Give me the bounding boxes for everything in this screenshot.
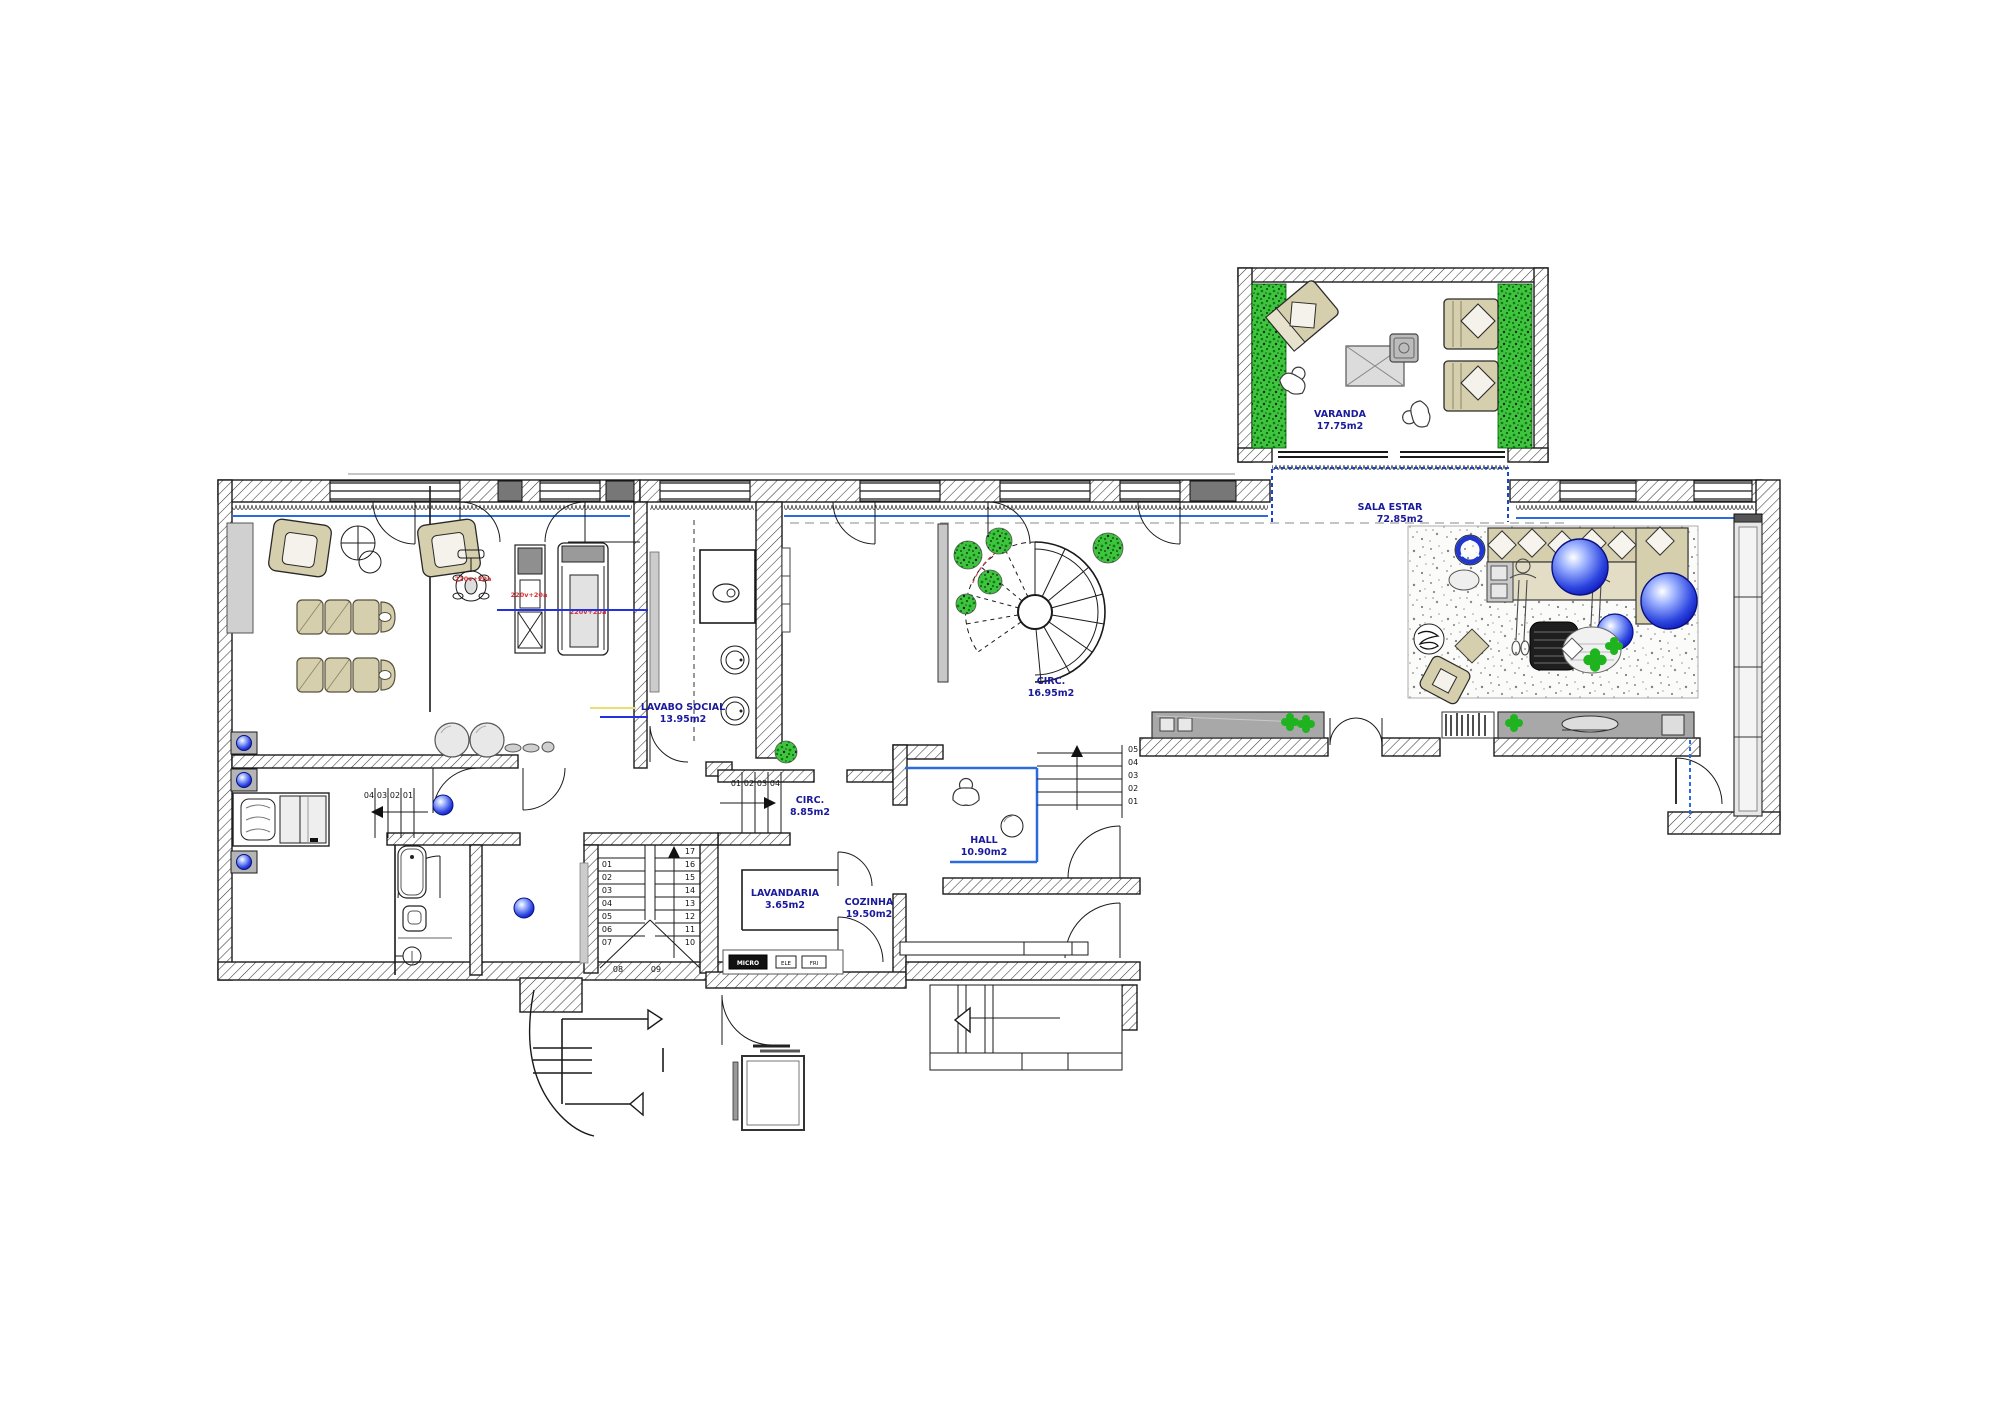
stair-number: 01	[403, 791, 413, 800]
elevator	[733, 1046, 804, 1130]
stair-number: 04	[602, 899, 612, 908]
room-label-circ-lower: CIRC.	[796, 795, 824, 806]
bookshelf	[1442, 712, 1494, 738]
stair-number: 02	[1128, 784, 1138, 793]
kitchen-counter: MICRO ELE FRI	[723, 950, 843, 974]
room-label-hall: HALL	[970, 835, 997, 846]
oval-side-table	[1449, 570, 1479, 590]
floor-plan-svg: VARANDA 17.75m2 220v+20a 22	[0, 0, 2000, 1414]
stair-number: 03	[757, 779, 767, 788]
equipment-note: 220v+20a	[511, 591, 548, 599]
stair-number: 04	[770, 779, 780, 788]
armchair	[268, 518, 333, 578]
wall-niche-light	[231, 732, 257, 754]
blue-sphere-decor	[1641, 573, 1697, 629]
stair-number: 16	[685, 860, 695, 869]
stair-number: 02	[390, 791, 400, 800]
window	[330, 481, 460, 501]
armchair	[417, 518, 482, 578]
bathtub	[398, 846, 426, 898]
wall-niche-light	[231, 769, 257, 791]
wall-panel	[227, 523, 253, 633]
stair-number: 12	[685, 912, 695, 921]
hedge-right	[1498, 284, 1532, 448]
living-room: SALA ESTAR 72.85m2	[1358, 502, 1698, 706]
stair-number: 01	[731, 779, 741, 788]
room-area-cozinha: 19.50m2	[846, 909, 893, 920]
room-label-circ-spiral: CIRC.	[1037, 676, 1065, 687]
window	[860, 481, 940, 501]
appliance-label: ELE	[781, 961, 792, 967]
window	[540, 481, 600, 501]
stair-number: 15	[685, 873, 695, 882]
veranda-chaise	[1444, 361, 1498, 411]
stair-number: 03	[1128, 771, 1138, 780]
counter-appliance	[1662, 715, 1684, 735]
blue-sphere-light	[433, 795, 453, 815]
stair-number: 17	[685, 847, 695, 856]
stair-number: 05	[602, 912, 612, 921]
window	[1560, 481, 1636, 501]
stair-number: 03	[602, 886, 612, 895]
scribble-plant	[1414, 624, 1444, 654]
treadmill	[558, 543, 608, 655]
room-label-varanda: VARANDA	[1314, 409, 1367, 420]
wardrobe	[1734, 514, 1762, 816]
wall-shelf	[782, 548, 790, 632]
stair-number: 06	[602, 925, 612, 934]
room-label-cozinha: COZINHA	[845, 897, 894, 908]
room-label-lavandaria: LAVANDARIA	[751, 888, 820, 899]
stair-number: 02	[602, 873, 612, 882]
stair-number: 10	[685, 938, 695, 947]
stair-number: 04	[1128, 758, 1138, 767]
stair-number: 14	[685, 886, 695, 895]
floor-plan-page: VARANDA 17.75m2 220v+20a 22	[0, 0, 2000, 1414]
room-label-lavabo: LAVABO SOCIAL	[641, 702, 725, 713]
exterior-stair	[930, 985, 1122, 1070]
appliance-label: MICRO	[737, 960, 759, 967]
multi-gym-machine	[515, 545, 545, 653]
stair-number: 04	[364, 791, 374, 800]
veranda-chaise	[1444, 299, 1498, 349]
room-area-lavabo: 13.95m2	[660, 714, 707, 725]
room-label-sala: SALA ESTAR	[1358, 502, 1423, 513]
room-area-hall: 10.90m2	[961, 847, 1008, 858]
stair-number: 08	[613, 965, 623, 974]
room-area-varanda: 17.75m2	[1317, 421, 1364, 432]
stair-number: 07	[602, 938, 612, 947]
room-area-circ-spiral: 16.95m2	[1028, 688, 1075, 699]
stair-number: 05	[1128, 745, 1138, 754]
window	[660, 481, 750, 501]
window	[1000, 481, 1090, 501]
background	[0, 0, 2000, 1414]
partition-wall	[938, 524, 948, 682]
stair-number: 09	[651, 965, 661, 974]
window	[1694, 481, 1752, 501]
equipment-note: 220v+20a	[455, 575, 492, 583]
room-area-circ-lower: 8.85m2	[790, 807, 830, 818]
stair-number: 13	[685, 899, 695, 908]
window	[1120, 481, 1180, 501]
stair-number: 03	[377, 791, 387, 800]
stair-number: 02	[744, 779, 754, 788]
room-area-sala: 72.85m2	[1377, 514, 1424, 525]
stair-number: 01	[1128, 797, 1138, 806]
bed	[233, 793, 329, 846]
wall-niche-light	[231, 851, 257, 873]
ceiling-fan	[1455, 535, 1485, 565]
stair-number: 11	[685, 925, 695, 934]
toilet	[403, 906, 426, 931]
room-area-lavandaria: 3.65m2	[765, 900, 805, 911]
garden-bench	[900, 942, 1088, 955]
appliance-label: FRI	[810, 961, 819, 967]
blue-sphere-decor	[1552, 539, 1608, 595]
blue-sphere-light	[514, 898, 534, 918]
stair-number: 01	[602, 860, 612, 869]
